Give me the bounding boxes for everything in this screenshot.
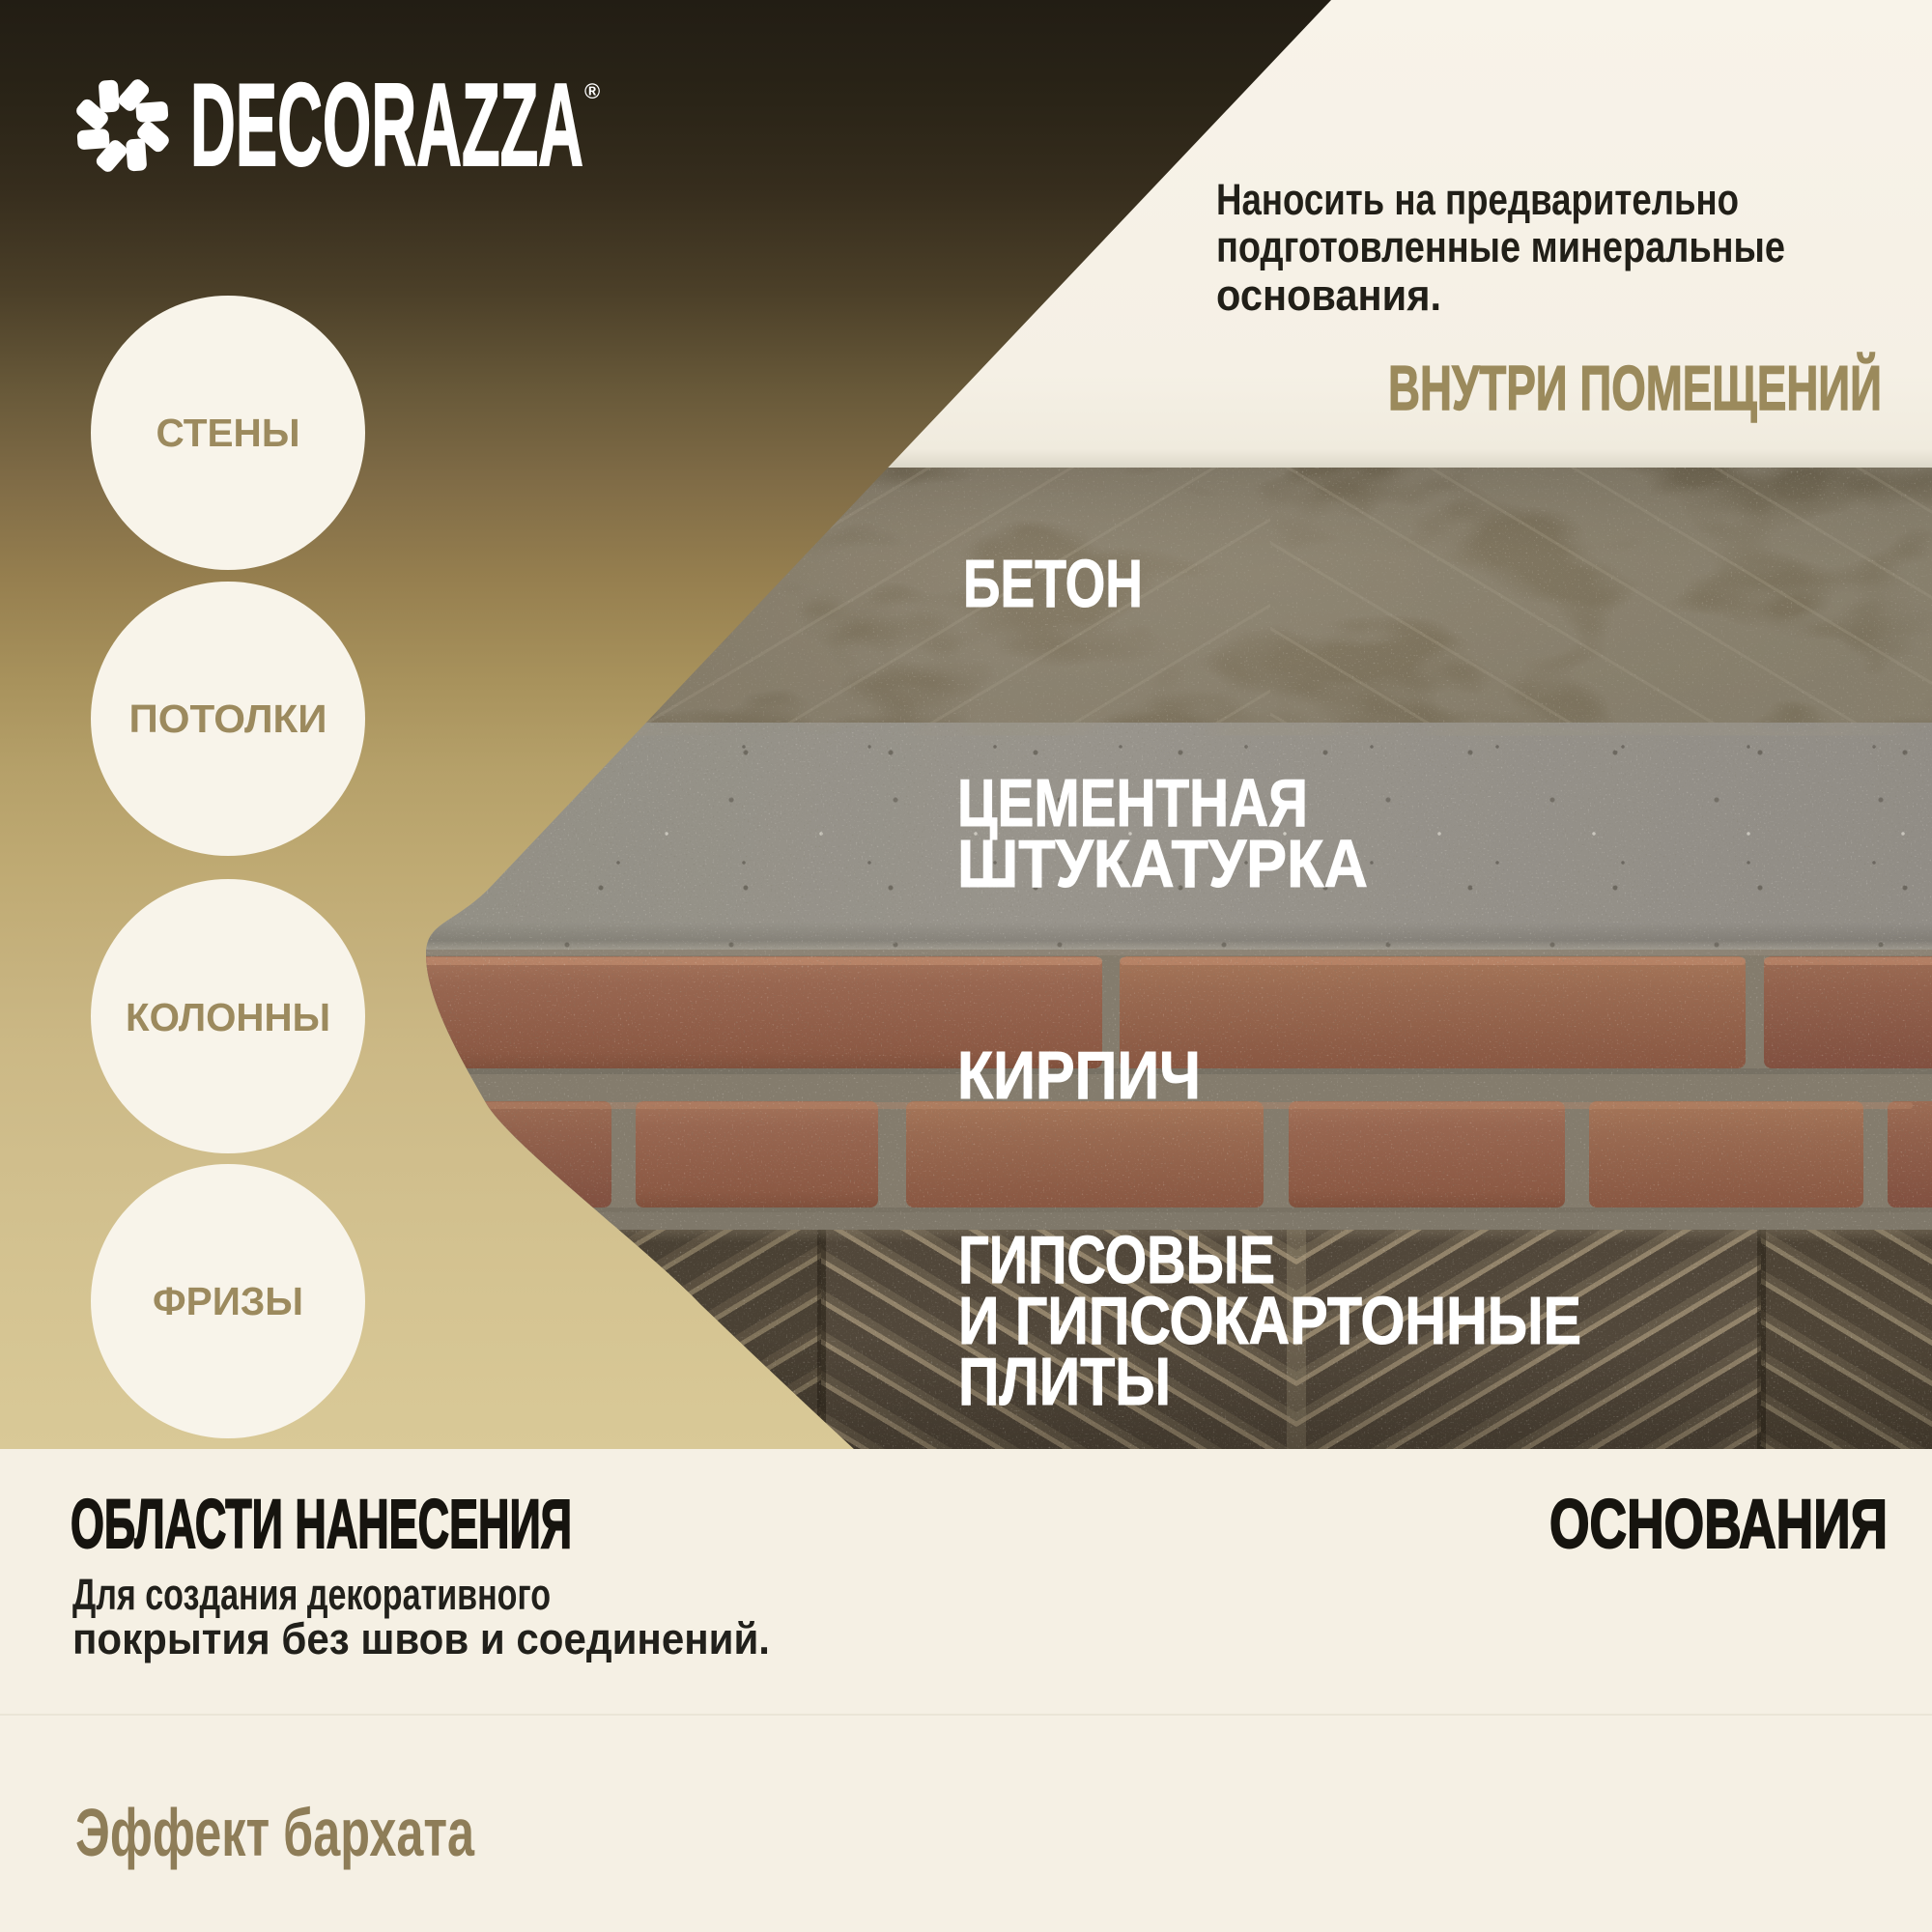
- svg-text:КИРПИЧ: КИРПИЧ: [957, 1037, 1201, 1113]
- svg-text:БЕТОН: БЕТОН: [963, 546, 1143, 621]
- svg-text:основания.: основания.: [1216, 270, 1441, 320]
- svg-text:DECORAZZA: DECORAZZA: [190, 59, 583, 190]
- svg-text:®: ®: [584, 79, 600, 103]
- svg-text:ШТУКАТУРКА: ШТУКАТУРКА: [957, 826, 1368, 901]
- svg-text:ПОТОЛКИ: ПОТОЛКИ: [129, 696, 327, 741]
- svg-text:ВНУТРИ ПОМЕЩЕНИЙ: ВНУТРИ ПОМЕЩЕНИЙ: [1388, 353, 1882, 423]
- svg-text:Эффект бархата: Эффект бархата: [75, 1795, 475, 1870]
- svg-text:покрытия без швов и соединений: покрытия без швов и соединений.: [72, 1614, 770, 1663]
- svg-text:подготовленные минеральные: подготовленные минеральные: [1216, 222, 1785, 271]
- svg-text:ОСНОВАНИЯ: ОСНОВАНИЯ: [1549, 1487, 1888, 1563]
- svg-text:ОБЛАСТИ НАНЕСЕНИЯ: ОБЛАСТИ НАНЕСЕНИЯ: [71, 1487, 572, 1563]
- svg-text:КОЛОННЫ: КОЛОННЫ: [126, 995, 330, 1039]
- svg-text:Для создания декоративного: Для создания декоративного: [72, 1570, 551, 1619]
- svg-text:ПЛИТЫ: ПЛИТЫ: [958, 1344, 1171, 1419]
- svg-text:СТЕНЫ: СТЕНЫ: [156, 411, 300, 455]
- svg-text:ФРИЗЫ: ФРИЗЫ: [153, 1279, 303, 1323]
- svg-text:Наносить на предварительно: Наносить на предварительно: [1216, 175, 1739, 224]
